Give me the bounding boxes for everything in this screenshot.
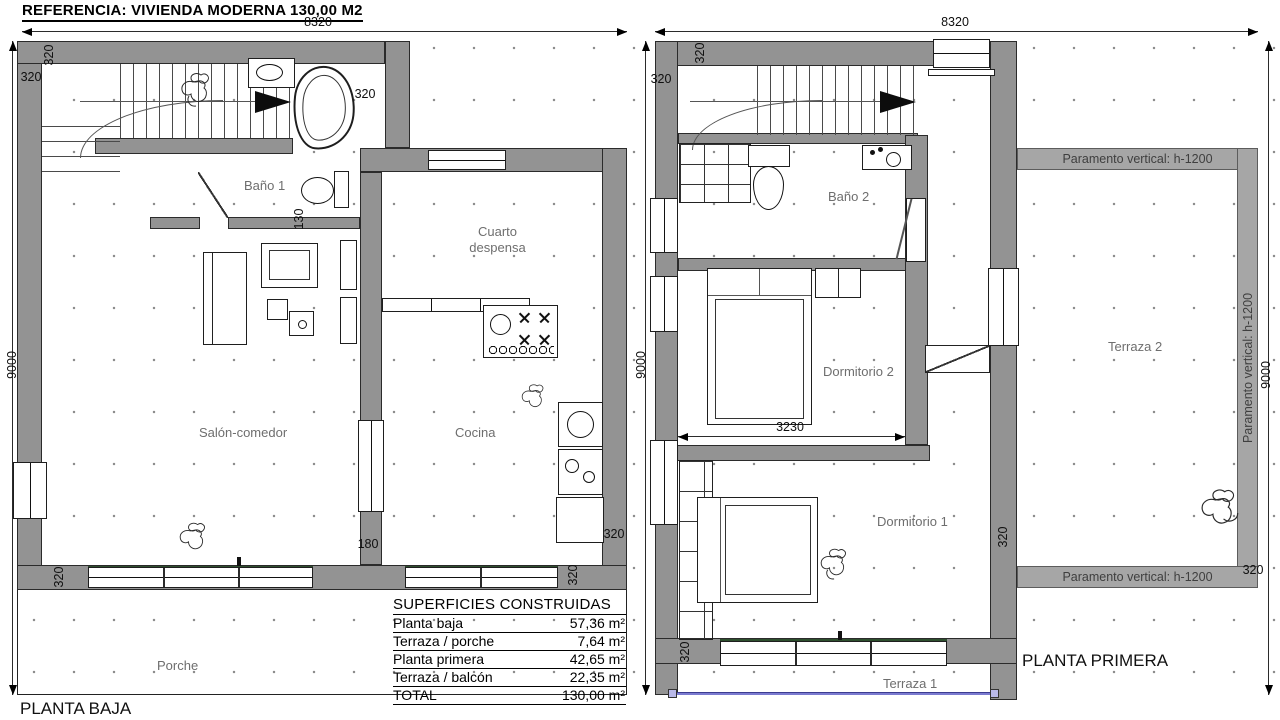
dim-arrow-up bbox=[1265, 41, 1273, 51]
dim-label-130: 130 bbox=[292, 204, 306, 234]
counter-edge-detail bbox=[488, 345, 554, 355]
faucet-dot bbox=[878, 147, 883, 152]
terrace-door bbox=[988, 268, 1019, 346]
decor-item bbox=[298, 320, 307, 329]
person-figure bbox=[514, 382, 554, 418]
appliance-oven bbox=[558, 449, 603, 495]
dim-label-320: 320 bbox=[693, 38, 707, 68]
washer-door bbox=[567, 411, 594, 438]
window-sill bbox=[928, 69, 995, 76]
sliding-window bbox=[720, 641, 947, 666]
dim-label-320: 320 bbox=[350, 87, 380, 101]
balcony-railing bbox=[673, 692, 995, 695]
row-value: 57,36 m² bbox=[570, 616, 625, 631]
wall-dorm2-right bbox=[905, 135, 928, 445]
table-row: Terraza / porche 7,64 m² bbox=[393, 633, 626, 651]
toilet-tank bbox=[334, 171, 349, 208]
window bbox=[650, 198, 678, 253]
dim-label-320: 320 bbox=[52, 562, 66, 592]
pillow-divider bbox=[759, 269, 760, 295]
kitchen-cabinet bbox=[556, 497, 604, 543]
row-value: 130,00 m² bbox=[562, 688, 625, 703]
terraza2-edge-line bbox=[1016, 170, 1017, 566]
plan-title-primera: PLANTA PRIMERA bbox=[1022, 651, 1168, 671]
bed bbox=[697, 497, 818, 603]
side-table bbox=[267, 299, 288, 320]
dim-arrow-right bbox=[895, 433, 905, 441]
table-row: Planta baja 57,36 m² bbox=[393, 615, 626, 633]
dim-arrow-down bbox=[642, 685, 650, 695]
row-label: Planta primera bbox=[393, 652, 484, 667]
kitchen-sink bbox=[490, 314, 511, 335]
wall-connector bbox=[385, 41, 410, 148]
shower bbox=[289, 63, 359, 153]
oven-dial bbox=[565, 459, 579, 473]
row-label: Terraza / porche bbox=[393, 634, 494, 649]
window bbox=[933, 39, 990, 68]
parapet-band-top: Paramento vertical: h-1200 bbox=[1017, 148, 1258, 170]
person-figure bbox=[812, 546, 858, 588]
bathroom-closet-grid bbox=[679, 143, 751, 203]
dim-line-top bbox=[655, 31, 1258, 32]
shelf-unit bbox=[340, 240, 357, 290]
dim-arrow-right bbox=[617, 28, 627, 36]
dim-arrow-left bbox=[678, 433, 688, 441]
shower-tray bbox=[299, 73, 350, 143]
dim-arrow-left bbox=[655, 28, 665, 36]
railing-post bbox=[990, 689, 999, 698]
pillow-line bbox=[720, 498, 721, 602]
room-label-salon: Salón-comedor bbox=[199, 425, 287, 440]
parapet-label-rotated: Paramento vertical: h-1200 bbox=[1241, 248, 1255, 488]
window bbox=[358, 420, 384, 512]
exterior-wall-right bbox=[990, 41, 1017, 700]
armchair-cushion bbox=[269, 250, 310, 280]
window-handle bbox=[838, 631, 842, 640]
sink-basin bbox=[886, 152, 901, 167]
dim-label-320: 320 bbox=[678, 637, 692, 667]
stair-direction-arrow bbox=[255, 91, 291, 113]
row-value: 7,64 m² bbox=[578, 634, 625, 649]
room-label-despensa-2: despensa bbox=[455, 240, 540, 255]
armchair bbox=[261, 243, 318, 288]
staircase-path-line bbox=[690, 101, 882, 102]
exterior-wall-right bbox=[602, 148, 627, 590]
dim-label-3230: 3230 bbox=[762, 420, 818, 434]
room-label-bano1: Baño 1 bbox=[244, 178, 285, 193]
row-value: 22,35 m² bbox=[570, 670, 625, 685]
sofa bbox=[203, 252, 247, 345]
dim-label-depth: 9000 bbox=[634, 345, 648, 385]
floor-plan-drawing: REFERENCIA: VIVIENDA MODERNA 130,00 M2 8… bbox=[0, 0, 1280, 720]
window-handle bbox=[237, 557, 241, 566]
door-leaf-open bbox=[925, 345, 990, 373]
window bbox=[13, 462, 47, 519]
wall-dorm2-bottom bbox=[655, 445, 930, 461]
dim-line-top bbox=[22, 31, 627, 32]
wall-bath-bottom-a bbox=[150, 217, 200, 229]
person-figure bbox=[172, 520, 216, 562]
window-mullion bbox=[795, 642, 797, 665]
bed bbox=[707, 268, 812, 425]
dim-arrow-right bbox=[1248, 28, 1258, 36]
window-mullion bbox=[238, 568, 240, 587]
dim-label-320: 320 bbox=[996, 522, 1010, 552]
dim-label-320: 320 bbox=[16, 70, 46, 84]
exterior-wall-left bbox=[655, 41, 678, 695]
exterior-wall-top bbox=[17, 41, 385, 64]
bathroom-vanity bbox=[748, 145, 790, 167]
room-label-cocina: Cocina bbox=[455, 425, 495, 440]
window bbox=[428, 150, 506, 170]
dim-label-320: 320 bbox=[1237, 563, 1269, 577]
row-label: Planta baja bbox=[393, 616, 463, 631]
room-label-despensa-1: Cuarto bbox=[455, 224, 540, 239]
window bbox=[650, 440, 678, 525]
table-row: TOTAL 130,00 m² bbox=[393, 687, 626, 705]
row-label: Terraza / balcón bbox=[393, 670, 493, 685]
room-label-terraza1: Terraza 1 bbox=[883, 676, 937, 691]
dim-arrow-down bbox=[1265, 685, 1273, 695]
sliding-window bbox=[88, 567, 313, 588]
dim-label-320: 320 bbox=[566, 560, 580, 590]
person-figure bbox=[175, 70, 219, 116]
shelf-unit bbox=[340, 297, 357, 344]
staircase-path-line bbox=[80, 101, 258, 102]
row-value: 42,65 m² bbox=[570, 652, 625, 667]
dim-arrow-left bbox=[22, 28, 32, 36]
bed-cover bbox=[715, 299, 804, 419]
room-label-porche: Porche bbox=[157, 658, 198, 673]
room-label-dorm2: Dormitorio 2 bbox=[823, 364, 894, 379]
nightstand-unit bbox=[815, 268, 861, 298]
table-row: Planta primera 42,65 m² bbox=[393, 651, 626, 669]
table-row: Terraza / balcón 22,35 m² bbox=[393, 669, 626, 687]
pillow-line bbox=[708, 295, 811, 296]
parapet-label: Paramento vertical: h-1200 bbox=[1062, 570, 1212, 584]
window-mullion bbox=[480, 568, 482, 587]
window bbox=[650, 276, 678, 332]
bed-cover bbox=[725, 505, 811, 595]
door-leaf bbox=[198, 172, 228, 218]
dim-label-width: 8320 bbox=[925, 15, 985, 29]
dim-label-depth: 9000 bbox=[1259, 355, 1273, 395]
railing-post bbox=[668, 689, 677, 698]
person-figure bbox=[1194, 484, 1246, 542]
row-label: TOTAL bbox=[393, 688, 437, 703]
areas-table: SUPERFICIES CONSTRUIDAS Planta baja 57,3… bbox=[393, 597, 626, 705]
toilet-bowl bbox=[753, 166, 784, 210]
parapet-label: Paramento vertical: h-1200 bbox=[1062, 152, 1212, 166]
dim-label-320: 320 bbox=[646, 72, 676, 86]
room-label-bano2: Baño 2 bbox=[828, 189, 869, 204]
dim-line-3230 bbox=[678, 436, 905, 437]
window-mullion bbox=[870, 642, 872, 665]
areas-table-title: SUPERFICIES CONSTRUIDAS bbox=[393, 597, 626, 615]
room-label-terraza2: Terraza 2 bbox=[1108, 339, 1162, 354]
plan-title-baja: PLANTA BAJA bbox=[20, 699, 131, 719]
stair-direction-arrow bbox=[880, 91, 916, 113]
window-mullion bbox=[163, 568, 165, 587]
dim-arrow-up bbox=[642, 41, 650, 51]
dim-arrow-down bbox=[9, 685, 17, 695]
faucet-dot bbox=[870, 150, 875, 155]
dim-label-width: 8320 bbox=[288, 15, 348, 29]
parapet-band-bottom: Paramento vertical: h-1200 bbox=[1017, 566, 1258, 588]
dim-arrow-up bbox=[9, 41, 17, 51]
dim-label-320: 320 bbox=[598, 527, 630, 541]
oven-dial bbox=[583, 471, 595, 483]
appliance-washer bbox=[558, 402, 603, 447]
toilet-bowl bbox=[301, 177, 334, 204]
dim-label-180: 180 bbox=[352, 537, 384, 551]
sink-basin bbox=[256, 64, 283, 81]
dim-label-320: 320 bbox=[42, 40, 56, 70]
room-label-dorm1: Dormitorio 1 bbox=[877, 514, 948, 529]
